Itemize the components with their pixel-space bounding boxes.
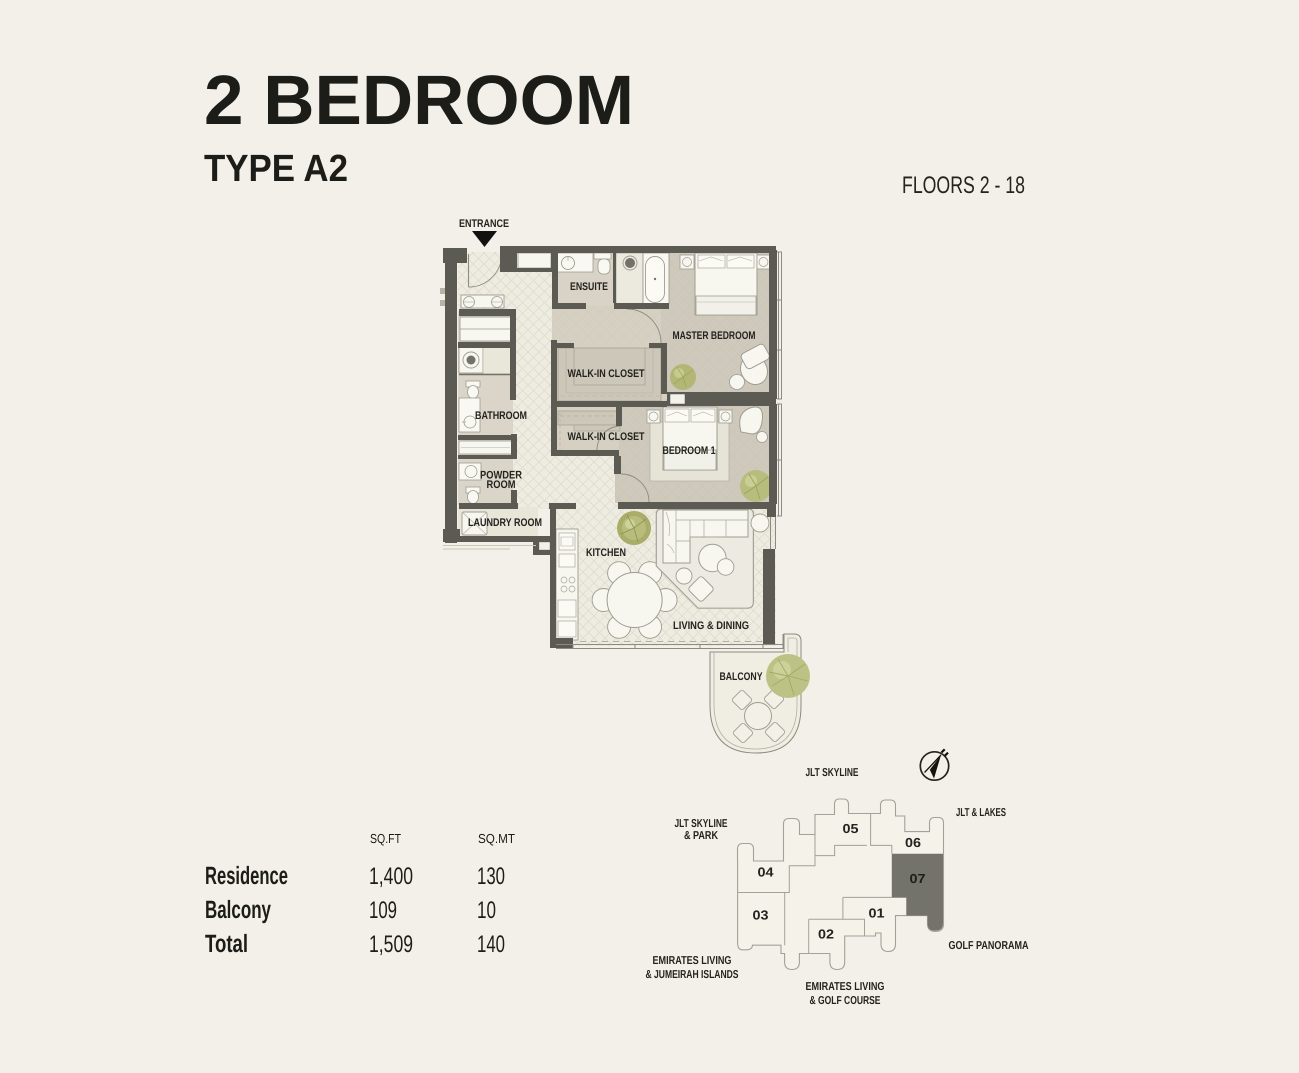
svg-text:2 BEDROOM: 2 BEDROOM bbox=[204, 61, 634, 139]
svg-text:EMIRATES LIVING: EMIRATES LIVING bbox=[653, 955, 732, 967]
svg-text:MASTER BEDROOM: MASTER BEDROOM bbox=[673, 330, 756, 342]
svg-text:BEDROOM 1: BEDROOM 1 bbox=[663, 445, 716, 457]
svg-text:GOLF PANORAMA: GOLF PANORAMA bbox=[949, 940, 1029, 952]
svg-text:SQ.MT: SQ.MT bbox=[478, 831, 515, 846]
svg-text:109: 109 bbox=[369, 897, 397, 924]
svg-text:ENSUITE: ENSUITE bbox=[570, 281, 608, 293]
svg-text:WALK-IN CLOSET: WALK-IN CLOSET bbox=[568, 368, 645, 380]
svg-text:Residence: Residence bbox=[205, 862, 288, 890]
svg-text:LAUNDRY ROOM: LAUNDRY ROOM bbox=[468, 517, 542, 529]
svg-text:Total: Total bbox=[205, 930, 248, 958]
svg-text:KITCHEN: KITCHEN bbox=[586, 547, 626, 559]
svg-text:JLT SKYLINE: JLT SKYLINE bbox=[806, 767, 859, 779]
svg-text:LIVING & DINING: LIVING & DINING bbox=[673, 620, 749, 632]
svg-text:ROOM: ROOM bbox=[487, 479, 516, 491]
svg-text:EMIRATES LIVING: EMIRATES LIVING bbox=[806, 981, 885, 993]
svg-text:01: 01 bbox=[869, 906, 885, 921]
svg-text:1,400: 1,400 bbox=[369, 863, 413, 890]
svg-text:04: 04 bbox=[758, 865, 775, 880]
svg-text:JLT & LAKES: JLT & LAKES bbox=[956, 807, 1006, 819]
svg-text:WALK-IN CLOSET: WALK-IN CLOSET bbox=[568, 431, 645, 443]
svg-text:& GOLF COURSE: & GOLF COURSE bbox=[810, 995, 881, 1007]
svg-text:& PARK: & PARK bbox=[684, 830, 719, 842]
svg-text:1,509: 1,509 bbox=[369, 931, 413, 958]
svg-text:FLOORS 2 - 18: FLOORS 2 - 18 bbox=[902, 172, 1025, 199]
svg-text:140: 140 bbox=[477, 931, 505, 958]
svg-text:BATHROOM: BATHROOM bbox=[475, 410, 527, 422]
svg-text:07: 07 bbox=[910, 871, 926, 886]
svg-text:02: 02 bbox=[818, 927, 834, 942]
svg-text:130: 130 bbox=[477, 863, 505, 890]
svg-text:BALCONY: BALCONY bbox=[720, 671, 764, 683]
svg-text:Balcony: Balcony bbox=[205, 896, 271, 924]
svg-text:10: 10 bbox=[477, 897, 496, 924]
svg-text:TYPE A2: TYPE A2 bbox=[204, 148, 348, 190]
svg-text:03: 03 bbox=[753, 908, 769, 923]
svg-text:& JUMEIRAH ISLANDS: & JUMEIRAH ISLANDS bbox=[646, 969, 739, 981]
svg-text:06: 06 bbox=[905, 835, 921, 850]
svg-text:JLT SKYLINE: JLT SKYLINE bbox=[675, 818, 728, 830]
svg-text:SQ.FT: SQ.FT bbox=[370, 831, 401, 846]
svg-text:ENTRANCE: ENTRANCE bbox=[459, 218, 509, 230]
svg-text:05: 05 bbox=[843, 821, 859, 836]
